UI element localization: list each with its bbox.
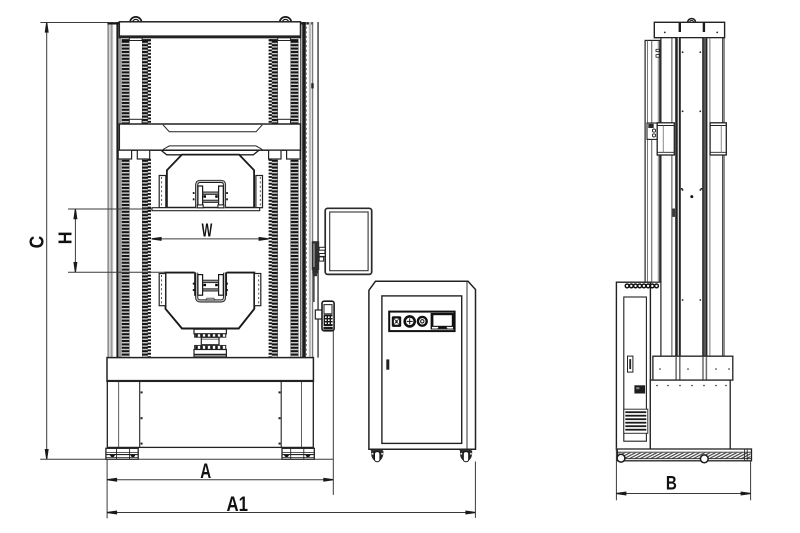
svg-text:C: C — [26, 236, 49, 249]
svg-text:B: B — [666, 472, 677, 494]
svg-text:A: A — [200, 458, 211, 482]
svg-text:W: W — [202, 221, 213, 241]
svg-text:H: H — [55, 231, 75, 244]
svg-text:A1: A1 — [227, 493, 249, 516]
